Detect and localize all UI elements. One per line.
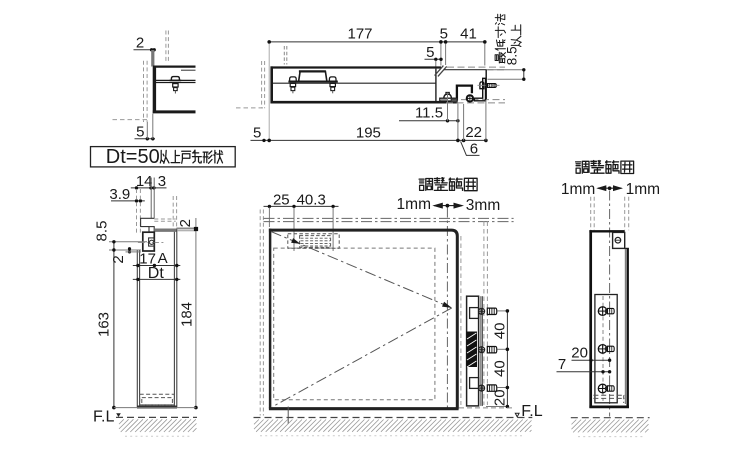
svg-text:F.L: F.L [93, 408, 114, 425]
svg-text:41: 41 [460, 25, 477, 42]
svg-text:1mm: 1mm [626, 181, 660, 198]
svg-text:5: 5 [426, 44, 434, 61]
svg-text:20: 20 [571, 345, 588, 362]
svg-text:3.9: 3.9 [109, 186, 130, 203]
svg-text:5: 5 [136, 124, 144, 141]
svg-text:2: 2 [136, 35, 144, 52]
svg-text:Dt=50: Dt=50 [106, 146, 160, 168]
svg-text:2: 2 [110, 255, 127, 263]
svg-text:22: 22 [465, 124, 482, 141]
svg-text:20: 20 [492, 389, 509, 406]
svg-text:40: 40 [492, 360, 509, 377]
svg-text:8.5: 8.5 [504, 46, 519, 65]
svg-text:40: 40 [492, 323, 509, 340]
svg-text:1mm: 1mm [561, 181, 595, 198]
svg-text:2: 2 [177, 219, 194, 227]
svg-text:7: 7 [558, 356, 566, 373]
svg-text:163: 163 [96, 312, 113, 337]
svg-text:6: 6 [470, 140, 478, 157]
svg-text:5: 5 [253, 125, 261, 142]
svg-text:177: 177 [347, 25, 372, 42]
svg-text:11.5: 11.5 [415, 104, 443, 121]
svg-text:40.3: 40.3 [297, 191, 326, 208]
svg-text:1mm: 1mm [397, 196, 431, 213]
svg-text:8.5: 8.5 [94, 221, 111, 242]
svg-text:195: 195 [356, 125, 381, 142]
svg-text:3mm: 3mm [466, 197, 500, 214]
svg-text:184: 184 [179, 302, 196, 327]
svg-text:5: 5 [440, 25, 448, 42]
svg-text:25: 25 [273, 191, 290, 208]
